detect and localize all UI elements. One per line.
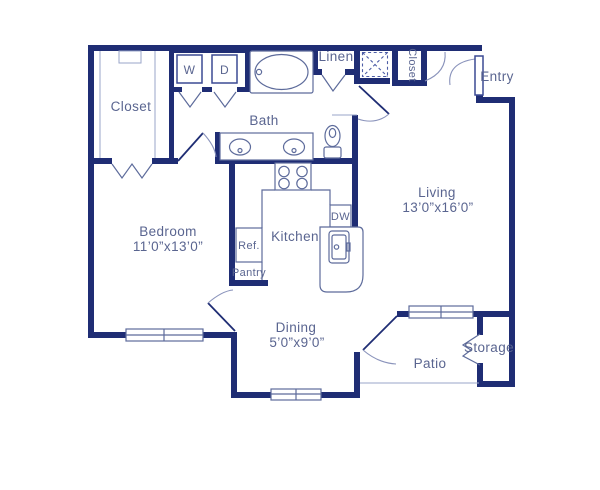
entry-door: [450, 56, 483, 95]
floorplan-drawing: Closet Bath Linen Closet Entry W D Bedro…: [0, 0, 600, 490]
label-refrigerator: Ref.: [238, 240, 260, 252]
bath-fixtures: [220, 51, 357, 160]
wall-storage-left-upper: [477, 317, 483, 335]
wall-dining-right: [354, 352, 360, 398]
wall-living-west: [352, 115, 358, 230]
bedroom-window: [126, 329, 203, 341]
closet-rod-bracket: [119, 51, 141, 63]
wall-laundry-right: [245, 45, 250, 92]
toilet-tank: [324, 147, 341, 158]
dining-window: [271, 389, 321, 400]
counter-edge-right: [311, 190, 330, 205]
wall-bedroom-right: [229, 164, 235, 282]
mechanical-niche: [363, 53, 388, 77]
label-dining: Dining: [276, 320, 317, 335]
label-washer: W: [184, 63, 196, 77]
wall-laundry-back: [174, 45, 250, 53]
wall-pantry-stub: [229, 280, 268, 286]
wall-storage-left-lower: [477, 363, 483, 382]
washer-door-chevron: [179, 92, 201, 107]
wall-left: [88, 45, 94, 338]
wall-entrycloset-right: [421, 45, 427, 86]
vanity: [220, 133, 313, 160]
wall-linen-bottom-left: [313, 69, 322, 75]
stove: [275, 163, 311, 190]
foyer-hall-door: [358, 86, 389, 121]
living-window: [409, 306, 473, 318]
linen-door-chevron: [322, 75, 345, 91]
kitchen-sink: [329, 231, 350, 263]
label-bedroom-dims: 11’0”x13’0”: [133, 239, 203, 254]
entry-closet-door-arc: [425, 52, 445, 81]
floorplan-page: Closet Bath Linen Closet Entry W D Bedro…: [0, 0, 600, 490]
patio-door: [363, 316, 397, 364]
hall-door: [178, 133, 216, 161]
wall-laundry-stub-mid: [202, 87, 212, 92]
label-bath: Bath: [249, 113, 278, 128]
bedroom-door: [208, 290, 235, 331]
wall-bedroom-top-b: [152, 158, 178, 164]
dryer-door-chevron: [214, 92, 236, 107]
wall-bedroom-top-a: [91, 158, 112, 164]
wall-laundry-stub-right: [237, 87, 245, 92]
wall-entrycloset-left: [392, 45, 398, 86]
wall-niche-bottom: [354, 78, 390, 84]
label-dryer: D: [220, 63, 229, 77]
label-dining-dims: 5’0”x9’0”: [269, 335, 324, 350]
label-living: Living: [418, 185, 456, 200]
label-living-dims: 13’0”x16’0”: [402, 200, 473, 215]
label-storage: Storage: [464, 340, 514, 355]
label-kitchen: Kitchen: [271, 229, 319, 244]
label-dishwasher: DW: [331, 211, 350, 223]
label-entry-closet: Closet: [406, 48, 418, 82]
wall-closet-right: [169, 45, 174, 164]
bedroom-closet-bifold: [112, 164, 152, 178]
label-bedroom: Bedroom: [139, 224, 197, 239]
label-closet-main: Closet: [111, 99, 152, 114]
label-pantry: Pantry: [232, 267, 266, 279]
counter-edge-left: [262, 190, 275, 228]
wall-step: [231, 332, 237, 398]
bathtub: [250, 51, 313, 93]
label-patio: Patio: [414, 356, 447, 371]
wall-laundry-stub-left: [174, 87, 182, 92]
label-entry: Entry: [480, 69, 514, 84]
label-linen: Linen: [318, 49, 353, 64]
